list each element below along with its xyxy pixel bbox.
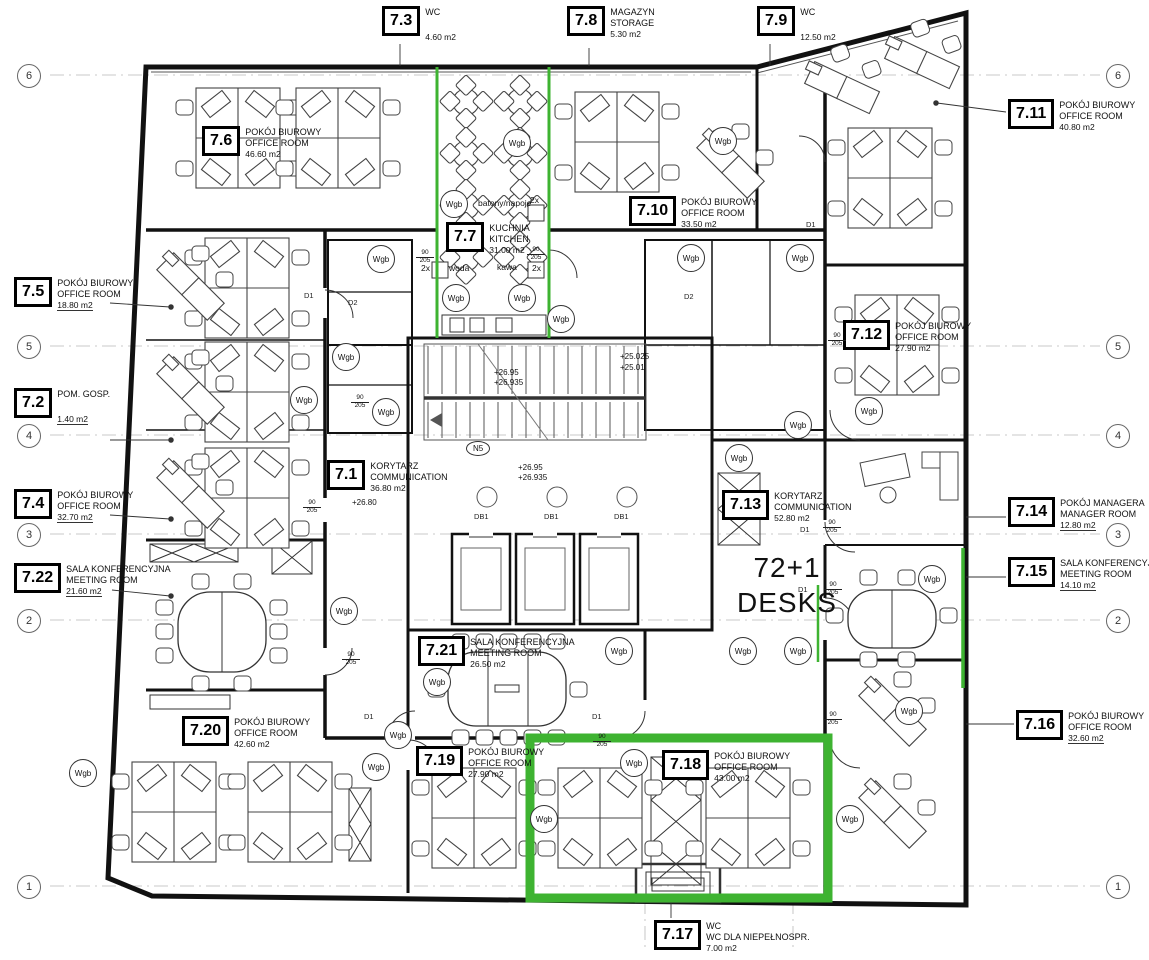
room-name-pl: POKÓJ BIUROWY bbox=[57, 490, 133, 501]
room-area: 36.80 m2 bbox=[370, 483, 405, 493]
room-area: 42.60 m2 bbox=[234, 739, 269, 749]
wgb-marker: Wgb bbox=[725, 444, 753, 472]
door-tag: D1 bbox=[304, 291, 314, 300]
room-area: 52.80 m2 bbox=[774, 513, 809, 523]
room-label-7-11: 7.11POKÓJ BIUROWYOFFICE ROOM40.80 m2 bbox=[1008, 99, 1135, 132]
room-label-7-10: 7.10POKÓJ BIUROWYOFFICE ROOM33.50 m2 bbox=[629, 196, 757, 229]
room-number: 7.20 bbox=[182, 716, 229, 746]
door-tag: D1 bbox=[806, 220, 816, 229]
room-label-7-7: 7.7KUCHNIAKITCHEN31.00 m2 bbox=[446, 222, 530, 255]
door-height: 205 bbox=[303, 507, 321, 515]
room-number: 7.2 bbox=[14, 388, 52, 418]
room-name-pl: POKÓJ BIUROWY bbox=[714, 751, 790, 762]
door-height: 205 bbox=[342, 659, 360, 667]
room-label-7-19: 7.19POKÓJ BIUROWYOFFICE ROOM27.90 m2 bbox=[416, 746, 544, 779]
room-label-7-12: 7.12POKÓJ BIUROWYOFFICE ROOM27.90 m2 bbox=[843, 320, 971, 353]
room-area: 26.50 m2 bbox=[470, 659, 505, 669]
elevators bbox=[452, 487, 638, 624]
room-area: 14.10 m2 bbox=[1060, 580, 1095, 591]
floorplan-canvas bbox=[0, 0, 1149, 960]
column-mark: DB1 bbox=[614, 512, 629, 521]
room-number: 7.22 bbox=[14, 563, 61, 593]
room-name-pl: SALA KONFERENCYJNA bbox=[470, 637, 575, 648]
room-area: 12.80 m2 bbox=[1060, 520, 1095, 531]
grid-marker-left-5: 5 bbox=[17, 335, 41, 359]
room-name-en: WC DLA NIEPEŁNOSPR. bbox=[706, 932, 810, 943]
room-name-pl: POKÓJ BIUROWY bbox=[245, 127, 321, 138]
door-tag: D1 bbox=[798, 585, 808, 594]
wgb-marker: Wgb bbox=[784, 637, 812, 665]
door-size: 90205 bbox=[828, 333, 846, 348]
wgb-marker: Wgb bbox=[855, 397, 883, 425]
grid-marker-right-4: 4 bbox=[1106, 424, 1130, 448]
room-number: 7.17 bbox=[654, 920, 701, 950]
room-name-pl: POKÓJ BIUROWY bbox=[468, 747, 544, 758]
room-number: 7.11 bbox=[1008, 99, 1054, 129]
room-name-en: OFFICE ROOM bbox=[1059, 111, 1135, 122]
room-area: 27.90 m2 bbox=[468, 769, 503, 779]
room-name-en: MANAGER ROOM bbox=[1060, 509, 1145, 520]
grid-marker-left-6: 6 bbox=[17, 64, 41, 88]
room-number: 7.21 bbox=[418, 636, 465, 666]
room-area: 32.70 m2 bbox=[57, 512, 92, 523]
room-number: 7.8 bbox=[567, 6, 605, 36]
level-mark: +26.95 bbox=[494, 368, 519, 377]
door-size: 90205 bbox=[342, 652, 360, 667]
room-name-pl: POKÓJ BIUROWY bbox=[1068, 711, 1144, 722]
door-size: 90205 bbox=[824, 712, 842, 727]
door-height: 205 bbox=[416, 257, 434, 265]
level-mark: +26.95 bbox=[518, 463, 543, 472]
wgb-marker: Wgb bbox=[330, 597, 358, 625]
door-tag: D2 bbox=[684, 292, 694, 301]
room-number: 7.16 bbox=[1016, 710, 1063, 740]
door-size: 90205 bbox=[527, 247, 545, 262]
wgb-marker: Wgb bbox=[895, 697, 923, 725]
wgb-marker: Wgb bbox=[709, 127, 737, 155]
door-width: 90 bbox=[356, 394, 363, 401]
room-area: 46.60 m2 bbox=[245, 149, 280, 159]
room-label-7-6: 7.6POKÓJ BIUROWYOFFICE ROOM46.60 m2 bbox=[202, 126, 321, 159]
room-name-pl: WC bbox=[706, 921, 810, 932]
room-label-7-21: 7.21SALA KONFERENCYJNAMEETING ROOM26.50 … bbox=[418, 636, 575, 669]
kitchen-coffee-label: kawa bbox=[497, 262, 517, 272]
wgb-marker: Wgb bbox=[69, 759, 97, 787]
room-name-en: OFFICE ROOM bbox=[234, 728, 310, 739]
stair-mark: N5 bbox=[466, 441, 490, 456]
room-name-pl: KORYTARZ bbox=[774, 491, 851, 502]
room-number: 7.14 bbox=[1008, 497, 1055, 527]
room-name-pl: SALA KONFERENCYJNA bbox=[66, 564, 171, 575]
room-area: 12.50 m2 bbox=[800, 32, 835, 42]
door-width: 90 bbox=[532, 246, 539, 253]
door-height: 205 bbox=[824, 589, 842, 597]
level-mark: +26.935 bbox=[494, 378, 523, 387]
room-area: 43.00 m2 bbox=[714, 773, 749, 783]
room-name-en: MEETING ROOM bbox=[1060, 569, 1149, 580]
grid-marker-left-1: 1 bbox=[17, 875, 41, 899]
room-name-pl: WC bbox=[800, 7, 835, 18]
room-area: 27.90 m2 bbox=[895, 343, 930, 353]
wgb-marker: Wgb bbox=[729, 637, 757, 665]
room-label-7-5: 7.5POKÓJ BIUROWYOFFICE ROOM18.80 m2 bbox=[14, 277, 133, 310]
room-area: 1.40 m2 bbox=[57, 414, 88, 425]
level-mark: +26.935 bbox=[518, 473, 547, 482]
column-mark: DB1 bbox=[544, 512, 559, 521]
door-size: 90205 bbox=[593, 734, 611, 749]
room-name-en: OFFICE ROOM bbox=[57, 501, 133, 512]
room-number: 7.15 bbox=[1008, 557, 1055, 587]
qty-label: 2x bbox=[532, 263, 541, 273]
room-area: 21.60 m2 bbox=[66, 586, 101, 597]
room-label-7-1: 7.1KORYTARZCOMMUNICATION36.80 m2 bbox=[327, 460, 448, 493]
room-number: 7.13 bbox=[722, 490, 769, 520]
door-width: 90 bbox=[598, 733, 605, 740]
room-name-en: OFFICE ROOM bbox=[245, 138, 321, 149]
door-tag: D1 bbox=[800, 525, 810, 534]
wgb-marker: Wgb bbox=[367, 245, 395, 273]
kitchen-water-label: woda bbox=[449, 263, 469, 273]
door-height: 205 bbox=[823, 527, 841, 535]
door-size: 90205 bbox=[824, 582, 842, 597]
room-area: 4.60 m2 bbox=[425, 32, 456, 42]
wgb-marker: Wgb bbox=[620, 749, 648, 777]
door-width: 90 bbox=[833, 332, 840, 339]
room-name-pl: POKÓJ BIUROWY bbox=[681, 197, 757, 208]
grid-marker-right-1: 1 bbox=[1106, 875, 1130, 899]
wgb-marker: Wgb bbox=[786, 244, 814, 272]
room-number: 7.1 bbox=[327, 460, 365, 490]
room-label-7-15: 7.15SALA KONFERENCYJNAMEETING ROOM14.10 … bbox=[1008, 557, 1149, 590]
door-tag: D2 bbox=[348, 298, 358, 307]
room-name-en: STORAGE bbox=[610, 18, 655, 29]
room-number: 7.4 bbox=[14, 489, 52, 519]
room-name-en: OFFICE ROOM bbox=[895, 332, 971, 343]
door-height: 205 bbox=[824, 719, 842, 727]
room-number: 7.5 bbox=[14, 277, 52, 307]
grid-marker-right-6: 6 bbox=[1106, 64, 1130, 88]
floor-plan: 7.5POKÓJ BIUROWYOFFICE ROOM18.80 m2 7.2P… bbox=[0, 0, 1149, 960]
wgb-marker: Wgb bbox=[440, 190, 468, 218]
room-name-pl: MAGAZYN bbox=[610, 7, 655, 18]
wgb-marker: Wgb bbox=[508, 284, 536, 312]
room-label-7-2: 7.2POM. GOSP.1.40 m2 bbox=[14, 388, 110, 425]
room-name-en: OFFICE ROOM bbox=[1068, 722, 1144, 733]
room-name-en: OFFICE ROOM bbox=[681, 208, 757, 219]
wgb-marker: Wgb bbox=[547, 305, 575, 333]
desk-count-value: 72+1 bbox=[732, 550, 842, 585]
room-name-pl: POKÓJ MANAGERA bbox=[1060, 498, 1145, 509]
grid-marker-left-2: 2 bbox=[17, 609, 41, 633]
level-mark: +25.025 bbox=[620, 352, 649, 361]
room-name-en: MEETING ROOM bbox=[66, 575, 171, 586]
room-number: 7.9 bbox=[757, 6, 795, 36]
wgb-marker: Wgb bbox=[530, 805, 558, 833]
wgb-marker: Wgb bbox=[372, 398, 400, 426]
room-name-pl: SALA KONFERENCYJNA bbox=[1060, 558, 1149, 569]
wgb-marker: Wgb bbox=[362, 753, 390, 781]
room-area: 31.00 m2 bbox=[489, 245, 524, 255]
level-mark: +26.80 bbox=[352, 498, 377, 507]
door-width: 90 bbox=[828, 519, 835, 526]
wgb-marker: Wgb bbox=[605, 637, 633, 665]
room-number: 7.6 bbox=[202, 126, 240, 156]
room-area: 33.50 m2 bbox=[681, 219, 716, 229]
door-width: 90 bbox=[421, 249, 428, 256]
room-name-en: KITCHEN bbox=[489, 234, 530, 245]
wgb-marker: Wgb bbox=[332, 343, 360, 371]
column-mark: DB1 bbox=[474, 512, 489, 521]
room-label-7-22: 7.22SALA KONFERENCYJNAMEETING ROOM21.60 … bbox=[14, 563, 171, 596]
room-label-7-16: 7.16POKÓJ BIUROWYOFFICE ROOM32.60 m2 bbox=[1016, 710, 1144, 743]
room-area: 5.30 m2 bbox=[610, 29, 641, 39]
room-name-en: MEETING ROOM bbox=[470, 648, 575, 659]
wgb-marker: Wgb bbox=[918, 565, 946, 593]
qty-label: 2x bbox=[530, 195, 539, 205]
door-height: 205 bbox=[351, 402, 369, 410]
door-tag: D1 bbox=[364, 712, 374, 721]
room-number: 7.18 bbox=[662, 750, 709, 780]
room-number: 7.7 bbox=[446, 222, 484, 252]
door-size: 90205 bbox=[823, 520, 841, 535]
room-number: 7.12 bbox=[843, 320, 890, 350]
grid-marker-left-3: 3 bbox=[17, 523, 41, 547]
door-width: 90 bbox=[347, 651, 354, 658]
room-name-pl: POKÓJ BIUROWY bbox=[895, 321, 971, 332]
room-name-pl: KUCHNIA bbox=[489, 223, 530, 234]
door-width: 90 bbox=[829, 581, 836, 588]
door-size: 90205 bbox=[416, 250, 434, 265]
room-label-7-3: 7.3WC4.60 m2 bbox=[382, 6, 456, 43]
wgb-marker: Wgb bbox=[836, 805, 864, 833]
door-width: 90 bbox=[308, 499, 315, 506]
room-area: 18.80 m2 bbox=[57, 300, 92, 311]
room-label-7-8: 7.8MAGAZYNSTORAGE5.30 m2 bbox=[567, 6, 655, 39]
wgb-marker: Wgb bbox=[442, 284, 470, 312]
wgb-marker: Wgb bbox=[290, 386, 318, 414]
door-height: 205 bbox=[593, 741, 611, 749]
room-label-7-4: 7.4POKÓJ BIUROWYOFFICE ROOM32.70 m2 bbox=[14, 489, 133, 522]
wgb-marker: Wgb bbox=[677, 244, 705, 272]
room-name-pl: POM. GOSP. bbox=[57, 389, 110, 400]
door-size: 90205 bbox=[351, 395, 369, 410]
door-width: 90 bbox=[829, 711, 836, 718]
room-area: 32.60 m2 bbox=[1068, 733, 1103, 744]
door-height: 205 bbox=[527, 254, 545, 262]
room-number: 7.10 bbox=[629, 196, 676, 226]
manager-desk bbox=[860, 452, 958, 503]
room-label-7-9: 7.9WC12.50 m2 bbox=[757, 6, 836, 43]
room-name-pl: POKÓJ BIUROWY bbox=[57, 278, 133, 289]
room-label-7-20: 7.20POKÓJ BIUROWYOFFICE ROOM42.60 m2 bbox=[182, 716, 310, 749]
grid-marker-left-4: 4 bbox=[17, 424, 41, 448]
room-area: 7.00 m2 bbox=[706, 943, 737, 953]
room-name-en: COMMUNICATION bbox=[774, 502, 851, 513]
room-name-pl: POKÓJ BIUROWY bbox=[1059, 100, 1135, 111]
door-height: 205 bbox=[828, 340, 846, 348]
wgb-marker: Wgb bbox=[384, 721, 412, 749]
grid-marker-right-2: 2 bbox=[1106, 609, 1130, 633]
room-number: 7.19 bbox=[416, 746, 463, 776]
room-name-en: OFFICE ROOM bbox=[57, 289, 133, 300]
staircase bbox=[424, 344, 646, 440]
door-tag: D1 bbox=[592, 712, 602, 721]
room-name-en: OFFICE ROOM bbox=[714, 762, 790, 773]
wgb-marker: Wgb bbox=[503, 129, 531, 157]
room-name-pl: POKÓJ BIUROWY bbox=[234, 717, 310, 728]
room-name-en: COMMUNICATION bbox=[370, 472, 447, 483]
kitchen-snacks-label: batony/napoje bbox=[478, 198, 531, 208]
room-name-pl: KORYTARZ bbox=[370, 461, 447, 472]
room-label-7-18: 7.18POKÓJ BIUROWYOFFICE ROOM43.00 m2 bbox=[662, 750, 790, 783]
room-area: 40.80 m2 bbox=[1059, 122, 1094, 132]
grid-marker-right-5: 5 bbox=[1106, 335, 1130, 359]
room-name-pl: WC bbox=[425, 7, 456, 18]
room-number: 7.3 bbox=[382, 6, 420, 36]
room-name-en: OFFICE ROOM bbox=[468, 758, 544, 769]
wgb-marker: Wgb bbox=[423, 668, 451, 696]
level-mark: +25.01 bbox=[620, 363, 645, 372]
wgb-marker: Wgb bbox=[784, 411, 812, 439]
room-label-7-17: 7.17WCWC DLA NIEPEŁNOSPR.7.00 m2 bbox=[654, 920, 810, 953]
grid-marker-right-3: 3 bbox=[1106, 523, 1130, 547]
door-size: 90205 bbox=[303, 500, 321, 515]
